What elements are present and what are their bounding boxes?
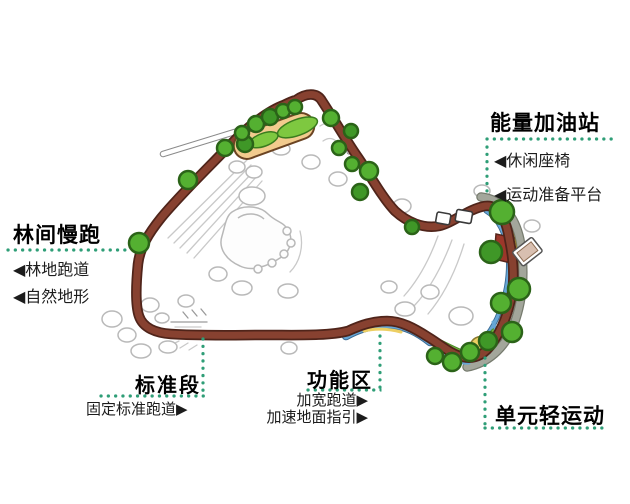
tree-icon (352, 184, 368, 200)
tree-icon (491, 293, 511, 313)
forest-jog-item-terrain: ◀自然地形 (13, 288, 101, 307)
standard-section-item-track: 固定标准跑道▶ (86, 398, 188, 419)
label-standard-section: 标准段 (128, 369, 208, 398)
park-trail-plan: 能量加油站 ◀休闲座椅 ◀运动准备平台 林间慢跑 ◀林地跑道 ◀自然地形 标准段… (0, 0, 630, 504)
tree-icon (288, 100, 302, 114)
energy-station-title: 能量加油站 (490, 107, 602, 137)
pond-sketch (221, 207, 295, 273)
bushes-layer (102, 143, 540, 358)
tree-icon (179, 171, 197, 189)
functional-area-item-widened: 加宽跑道▶ (240, 393, 368, 408)
label-forest-jog: 林间慢跑 ◀林地跑道 ◀自然地形 (13, 219, 101, 307)
label-energy-station: 能量加油站 ◀休闲座椅 ◀运动准备平台 (490, 107, 602, 205)
energy-station-item-platform: ◀运动准备平台 (490, 186, 602, 205)
tree-icon (461, 343, 479, 361)
tree-icon (344, 124, 358, 138)
label-functional-area-items: 加宽跑道▶ 加速地面指引▶ (240, 391, 368, 425)
tree-icon (405, 220, 419, 234)
forest-jog-item-track: ◀林地跑道 (13, 261, 101, 280)
tree-icon (332, 141, 346, 155)
tree-icon (479, 332, 497, 350)
tree-icon (502, 322, 522, 342)
label-functional-area: 功能区 (302, 364, 378, 393)
tree-icon (508, 278, 530, 300)
functional-area-item-guidance: 加速地面指引▶ (240, 410, 368, 425)
tree-icon (323, 110, 339, 126)
tree-icon (443, 353, 461, 371)
tree-icon (217, 140, 233, 156)
tree-icon (345, 157, 359, 171)
tree-icon (480, 241, 502, 263)
tree-icon (129, 233, 149, 253)
standard-section-title: 标准段 (128, 369, 208, 398)
energy-station-item-seats: ◀休闲座椅 (490, 152, 602, 171)
light-sports-title: 单元轻运动 (495, 400, 605, 430)
label-standard-section-item: 固定标准跑道▶ (86, 398, 188, 419)
tree-icon (360, 162, 378, 180)
label-light-sports: 单元轻运动 (495, 400, 605, 430)
tree-icon (235, 126, 249, 140)
functional-area-title: 功能区 (302, 364, 378, 393)
tree-icon (427, 348, 443, 364)
forest-jog-title: 林间慢跑 (13, 219, 101, 249)
